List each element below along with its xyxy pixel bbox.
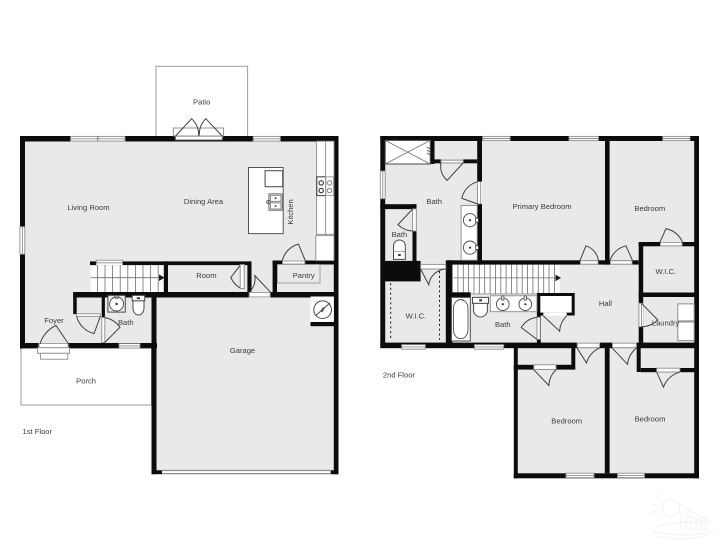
svg-text:Room: Room [196, 271, 216, 280]
svg-text:Foyer: Foyer [44, 316, 64, 325]
svg-text:Bath: Bath [118, 318, 134, 327]
svg-text:Dining Area: Dining Area [184, 197, 224, 206]
svg-text:Primary Bedroom: Primary Bedroom [512, 202, 571, 211]
svg-text:2nd Floor: 2nd Floor [383, 370, 416, 379]
svg-text:1st Floor: 1st Floor [23, 427, 53, 436]
svg-text:Bath: Bath [392, 230, 408, 239]
svg-text:Garage: Garage [230, 346, 255, 355]
svg-text:Porch: Porch [76, 377, 96, 386]
svg-text:W.I.C.: W.I.C. [406, 312, 427, 321]
svg-text:Bath: Bath [426, 197, 442, 206]
svg-text:Living Room: Living Room [67, 203, 109, 212]
svg-text:Hall: Hall [599, 299, 612, 308]
svg-text:Kitchen: Kitchen [286, 199, 295, 224]
svg-text:Patio: Patio [193, 97, 210, 106]
svg-text:Laundry: Laundry [652, 318, 680, 327]
svg-text:Bath: Bath [495, 320, 511, 329]
svg-text:Bedroom: Bedroom [634, 204, 665, 213]
svg-text:Pantry: Pantry [293, 271, 315, 280]
svg-text:Bedroom: Bedroom [635, 414, 666, 423]
svg-text:Bedroom: Bedroom [551, 416, 582, 425]
svg-text:W.I.C.: W.I.C. [655, 267, 676, 276]
